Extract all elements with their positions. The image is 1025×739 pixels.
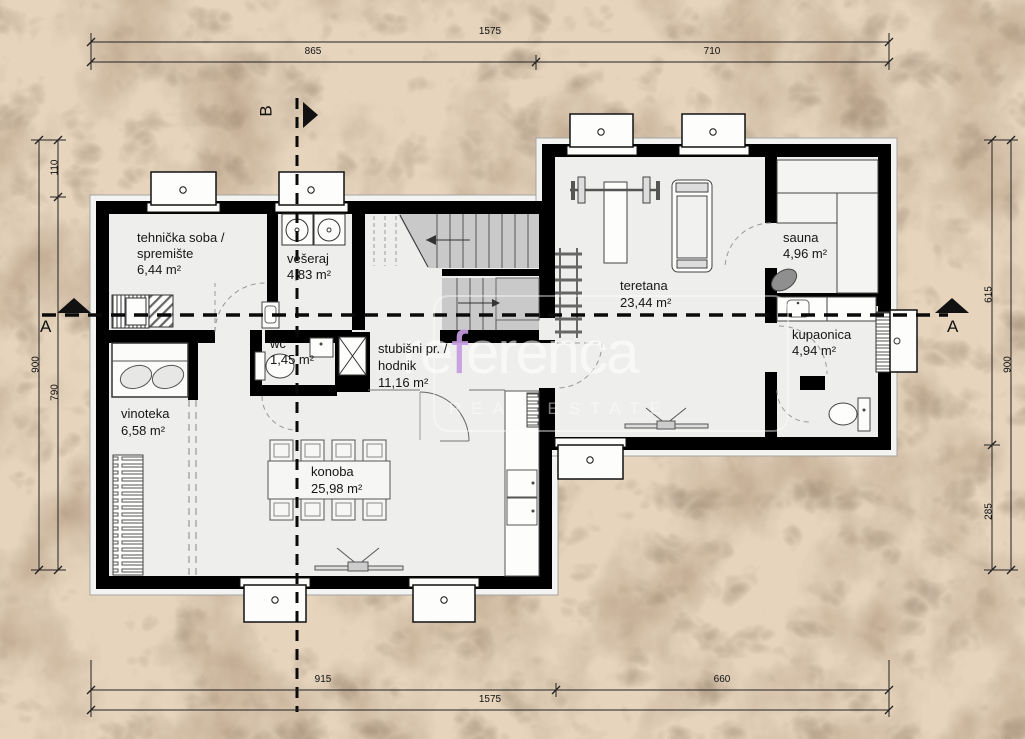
dim-right-top: 615 — [984, 275, 995, 315]
dim-left-bottom: 790 — [50, 373, 61, 413]
section-marker-a-right: A — [947, 317, 958, 337]
dim-right-outer: 900 — [1003, 345, 1014, 385]
watermark-tagline: REAL ESTATE — [449, 399, 671, 419]
washing-machines — [282, 214, 345, 245]
dim-bottom-right: 660 — [692, 674, 752, 685]
room-label-tehnicka: tehnička soba / spremište 6,44 m² — [137, 230, 224, 278]
dim-left-top: 110 — [50, 148, 61, 188]
gym-treadmill — [672, 180, 712, 272]
room-label-wc: wc 1,45 m² — [270, 336, 314, 368]
room-label-sauna: sauna 4,96 m² — [783, 230, 827, 262]
chimney-shaft — [339, 337, 366, 375]
boiler-units — [112, 295, 173, 328]
dim-bottom-total: 1575 — [460, 694, 520, 705]
dim-top-right: 710 — [682, 46, 742, 57]
wine-rack — [113, 455, 143, 575]
floorplan-screenshot: referenca REAL ESTATE tehnička soba / sp… — [0, 0, 1025, 739]
dim-right-bottom: 285 — [984, 492, 995, 532]
section-marker-a-left: A — [40, 317, 51, 337]
room-label-konoba: konoba 25,98 m² — [311, 463, 362, 497]
dim-bottom-left: 915 — [293, 674, 353, 685]
exterior-door-right — [876, 310, 917, 372]
dim-left-outer: 900 — [31, 345, 42, 385]
dim-top-total: 1575 — [460, 26, 520, 37]
watermark-accent-letter: f — [451, 319, 466, 386]
room-label-vinoteka: vinoteka 6,58 m² — [121, 405, 169, 439]
ham-display-case — [112, 343, 188, 397]
room-label-veseraj: vešeraj 4,83 m² — [287, 251, 331, 283]
room-label-teretana: teretana 23,44 m² — [620, 277, 671, 311]
room-label-stubisni: stubišni pr. / hodnik 11,16 m² — [378, 340, 447, 391]
section-marker-b-top: B — [257, 105, 277, 116]
dim-top-left: 865 — [283, 46, 343, 57]
room-label-kupaonica: kupaonica 4,94 m² — [792, 327, 851, 359]
